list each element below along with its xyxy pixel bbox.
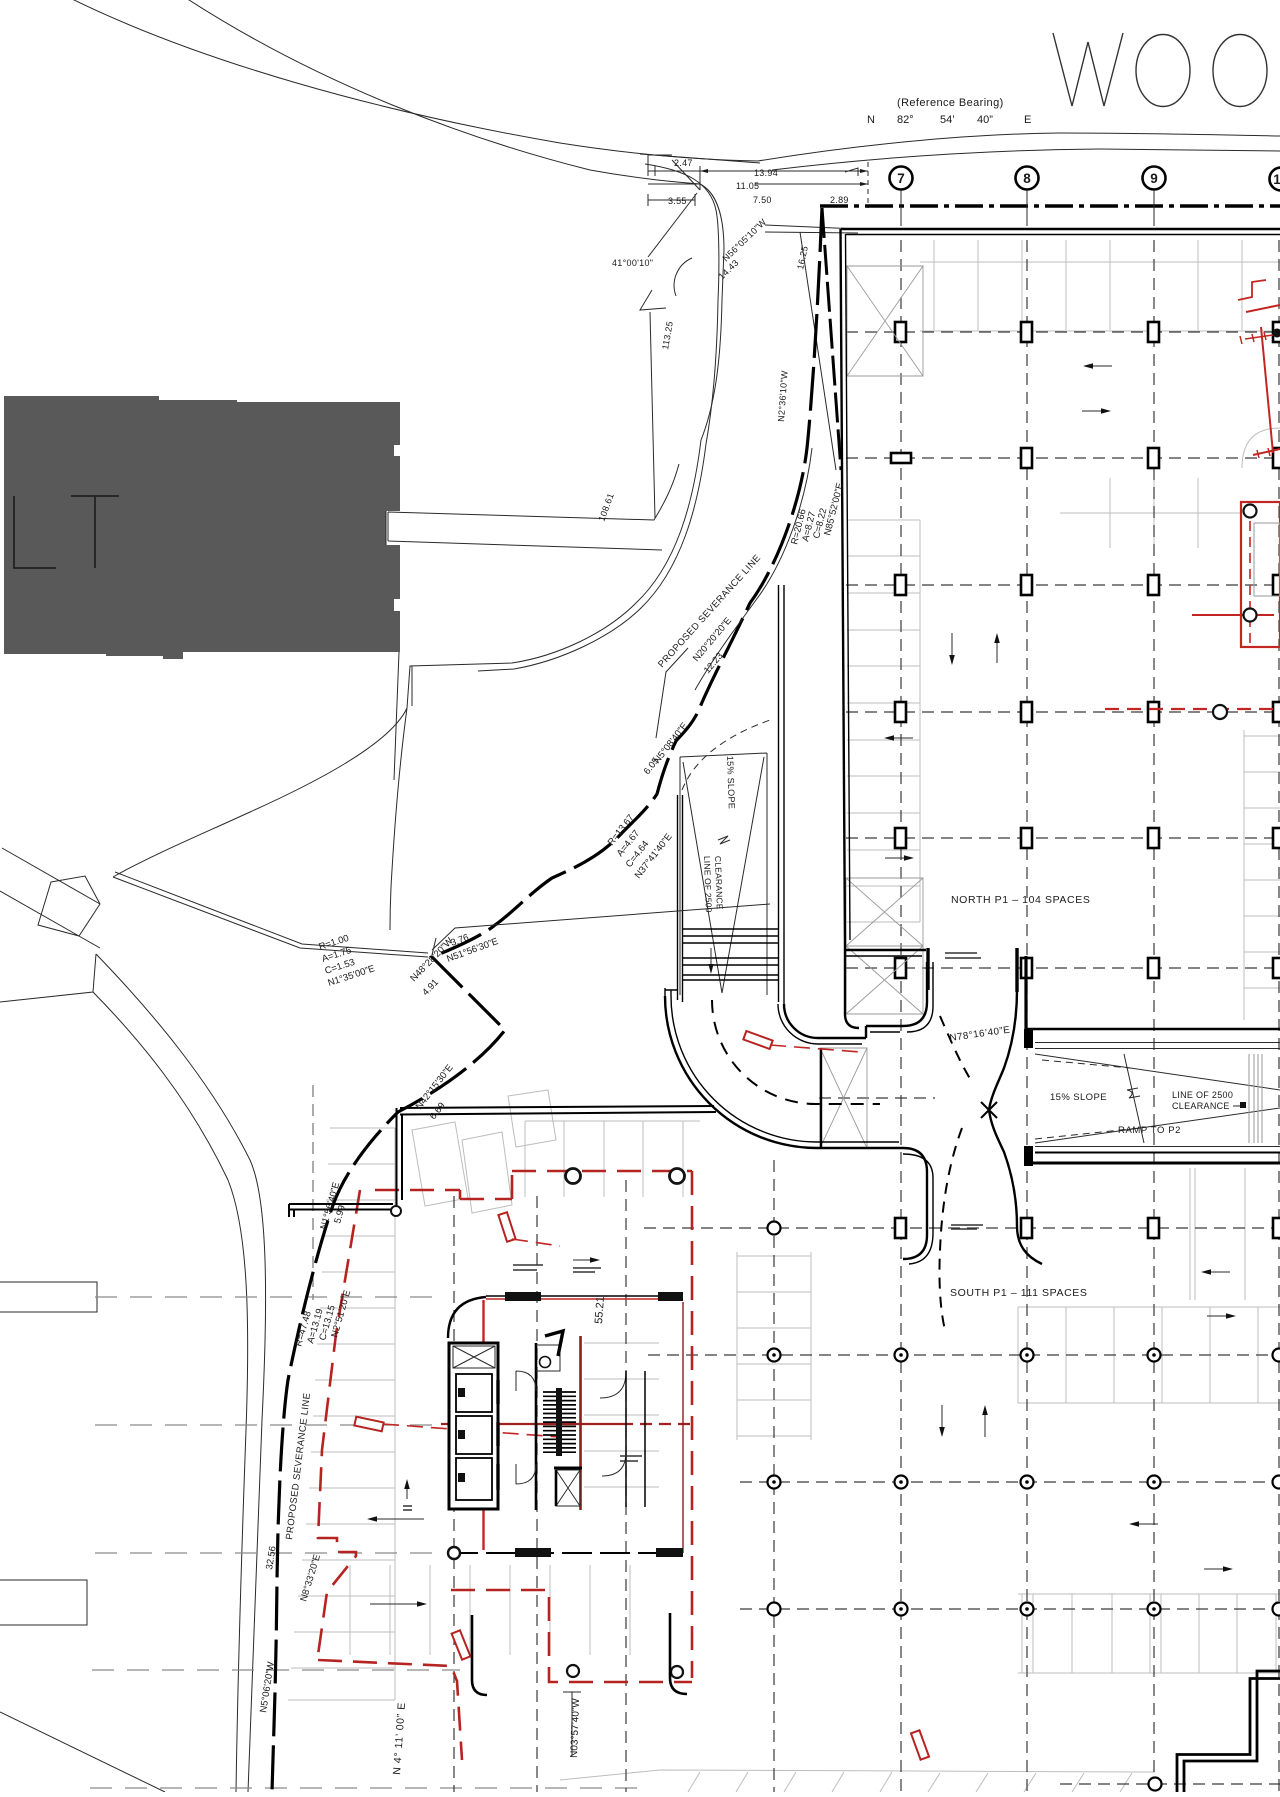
svg-text:CLEARANCE: CLEARANCE [713, 856, 725, 910]
svg-text:13.94: 13.94 [754, 168, 778, 178]
svg-text:55.21: 55.21 [593, 1296, 607, 1324]
svg-text:9: 9 [1150, 171, 1158, 186]
svg-text:2.89: 2.89 [830, 195, 849, 205]
svg-text:LINE OF 2500: LINE OF 2500 [1172, 1090, 1233, 1100]
svg-text:8: 8 [1023, 171, 1031, 186]
svg-text:(Reference Bearing): (Reference Bearing) [897, 97, 1004, 109]
svg-text:NORTH P1 – 104 SPACES: NORTH P1 – 104 SPACES [951, 894, 1090, 906]
svg-text:15% SLOPE: 15% SLOPE [725, 756, 737, 810]
svg-text:RAMP TO P2: RAMP TO P2 [1118, 1125, 1181, 1136]
svg-text:CLEARANCE: CLEARANCE [1172, 1101, 1230, 1111]
svg-text:1: 1 [1273, 172, 1280, 187]
svg-text:SOUTH P1 – 111 SPACES: SOUTH P1 – 111 SPACES [950, 1287, 1087, 1299]
svg-text:2.47: 2.47 [674, 158, 693, 168]
svg-text:41°00'10": 41°00'10" [612, 258, 653, 268]
svg-text:11.05: 11.05 [736, 181, 759, 191]
svg-text:3.55: 3.55 [668, 196, 687, 206]
svg-text:7.50: 7.50 [753, 195, 772, 205]
svg-text:7: 7 [897, 171, 905, 186]
svg-text:LINE OF 2500: LINE OF 2500 [702, 856, 714, 913]
svg-text:15% SLOPE: 15% SLOPE [1050, 1092, 1107, 1103]
svg-text:N03°57’40”W: N03°57’40”W [569, 1698, 582, 1758]
